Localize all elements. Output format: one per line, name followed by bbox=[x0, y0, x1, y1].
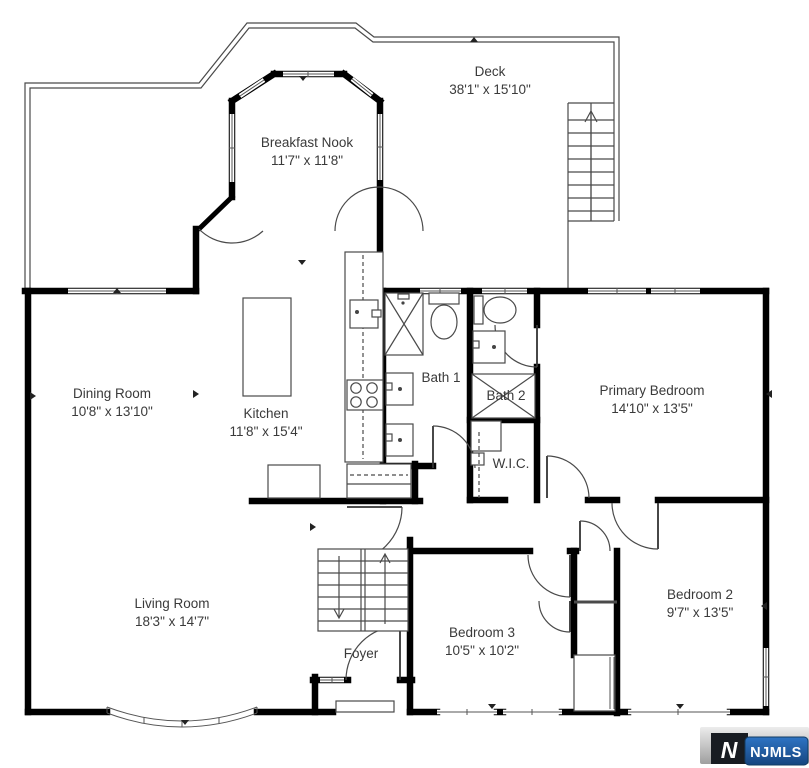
room-label-dining-room: Dining Room bbox=[73, 386, 151, 401]
njmls-logo-text: NJMLS bbox=[750, 745, 802, 761]
room-label-bath2: Bath 2 bbox=[486, 388, 525, 403]
bath1-toilet bbox=[429, 293, 459, 339]
kitchen-counter bbox=[345, 252, 383, 462]
bath1-shower bbox=[385, 293, 423, 355]
room-dims-bedroom2: 9'7" x 13'5" bbox=[667, 605, 734, 620]
bath2-vanity bbox=[473, 331, 505, 363]
room-label-bedroom2: Bedroom 2 bbox=[667, 587, 733, 602]
floor-plan-drawing: Deck 38'1" x 15'10" Breakfast Nook 11'7"… bbox=[0, 0, 809, 768]
kitchen-island bbox=[243, 298, 291, 396]
primary-bedroom-door bbox=[547, 456, 589, 498]
hall-closet-door bbox=[580, 521, 610, 551]
bedroom2-closet bbox=[574, 655, 615, 711]
bedroom3-door bbox=[528, 555, 570, 597]
room-label-bedroom3: Bedroom 3 bbox=[449, 625, 515, 640]
room-label-wic: W.I.C. bbox=[493, 456, 530, 471]
wic-shelf bbox=[471, 421, 501, 451]
room-label-primary-bedroom: Primary Bedroom bbox=[599, 383, 704, 398]
deck-stairs-up-arrow bbox=[585, 111, 597, 221]
bedroom2-door bbox=[612, 503, 658, 549]
room-label-kitchen: Kitchen bbox=[243, 406, 288, 421]
room-label-foyer: Foyer bbox=[344, 646, 379, 661]
room-dims-kitchen: 11'8" x 15'4" bbox=[229, 424, 302, 439]
room-dims-bedroom3: 10'5" x 10'2" bbox=[445, 643, 519, 658]
kitchen-cabinet bbox=[268, 465, 320, 498]
pantry-closet bbox=[347, 464, 411, 498]
room-dims-breakfast-nook: 11'7" x 11'8" bbox=[271, 153, 343, 168]
foyer-stairs bbox=[318, 549, 408, 631]
njmls-watermark: N NJMLS bbox=[700, 727, 809, 765]
nook-door-arc bbox=[199, 229, 263, 243]
kitchen-sink bbox=[350, 300, 381, 328]
entry-step bbox=[336, 701, 394, 712]
bath1-vanity-1 bbox=[386, 373, 413, 405]
bedroom3-closet-door bbox=[539, 601, 570, 632]
bow-window bbox=[107, 707, 257, 727]
wic-shelf-small bbox=[471, 453, 484, 465]
room-dims-dining-room: 10'8" x 13'10" bbox=[71, 404, 153, 419]
room-label-breakfast-nook: Breakfast Nook bbox=[261, 135, 354, 150]
room-dims-primary-bedroom: 14'10" x 13'5" bbox=[611, 401, 693, 416]
room-label-bath1: Bath 1 bbox=[421, 370, 460, 385]
bath2-toilet bbox=[474, 296, 516, 324]
room-label-living-room: Living Room bbox=[134, 596, 209, 611]
room-dims-living-room: 18'3" x 14'7" bbox=[135, 614, 209, 629]
deck-stairs bbox=[568, 103, 614, 291]
room-dims-deck: 38'1" x 15'10" bbox=[449, 82, 531, 97]
njmls-monogram: N bbox=[721, 737, 738, 763]
floor-plan-page: Deck 38'1" x 15'10" Breakfast Nook 11'7"… bbox=[0, 0, 809, 768]
bath1-vanity-2 bbox=[386, 424, 413, 456]
kitchen-stove bbox=[347, 380, 383, 410]
room-label-deck: Deck bbox=[475, 64, 506, 79]
